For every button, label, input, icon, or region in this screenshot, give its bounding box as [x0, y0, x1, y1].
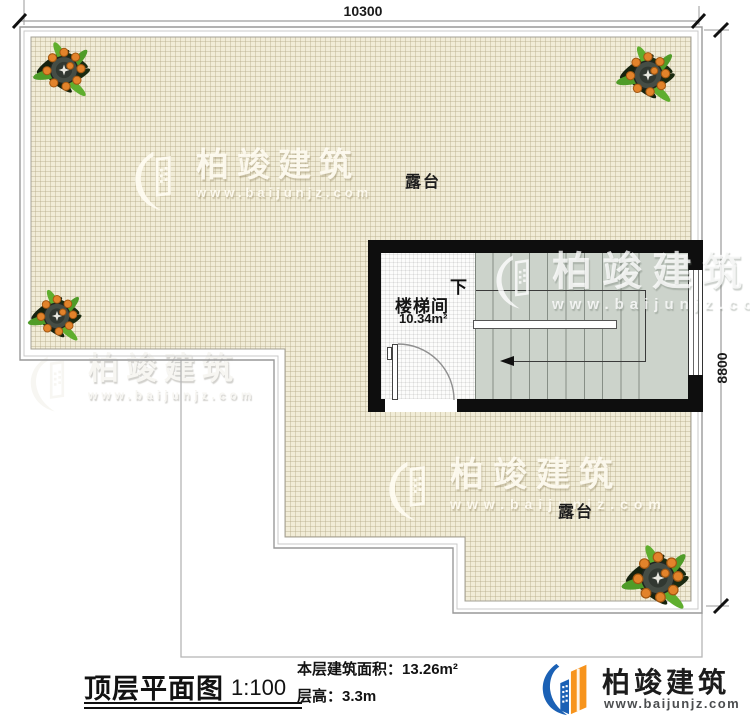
terrace-label-upper: 露台: [405, 168, 441, 192]
floor-area-row: 本层建筑面积：13.26m²: [297, 658, 458, 679]
floor-height-value: 3.3m: [342, 688, 376, 705]
plan-title: 顶层平面图: [84, 667, 224, 706]
watermark-brand: 柏竣建筑: [88, 353, 256, 384]
floorplan-canvas: 柏竣建筑 www.baijunjz.com 柏竣建筑 www.baijunjz.…: [0, 0, 750, 727]
company-logo-brand: 柏竣建筑: [602, 661, 730, 701]
floor-area-value: 13.26m²: [402, 661, 458, 678]
stairwell: 下 楼梯间 10.34m²: [368, 240, 703, 412]
watermark-lower-left: 柏竣建筑 www.baijunjz.com: [26, 353, 256, 415]
plan-scale: 1:100: [231, 675, 286, 701]
company-logo-url: www.baijunjz.com: [604, 696, 740, 711]
title-underline: [84, 707, 302, 709]
company-logo-icon: [540, 659, 598, 717]
dimension-right: 8800: [714, 345, 730, 391]
floor-height-row: 层高：3.3m: [297, 685, 376, 706]
title-underline: [84, 702, 302, 704]
floor-height-label: 层高：: [297, 688, 342, 705]
watermark-logo-icon: [26, 353, 80, 415]
potted-plant-icon: [618, 538, 698, 618]
potted-plant-icon: [25, 284, 89, 348]
dimension-top: 10300: [333, 3, 393, 19]
potted-plant-icon: [30, 36, 98, 104]
terrace-label-lower: 露台: [558, 498, 594, 522]
potted-plant-icon: [613, 40, 683, 110]
floor-area-label: 本层建筑面积：: [297, 661, 402, 678]
stairwell-window: [688, 270, 703, 375]
watermark-url: www.baijunjz.com: [88, 388, 256, 402]
door-swing-arc: [368, 240, 703, 412]
